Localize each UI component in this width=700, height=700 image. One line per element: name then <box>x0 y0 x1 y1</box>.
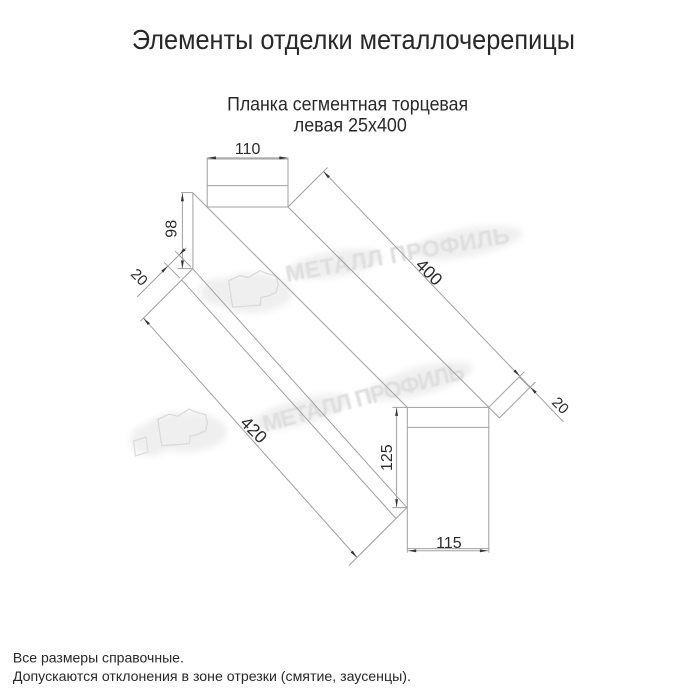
svg-text:МЕТАЛЛ ПРОФИЛЬ: МЕТАЛЛ ПРОФИЛЬ <box>260 358 468 437</box>
svg-text:125: 125 <box>379 444 396 471</box>
svg-text:Элементы отделки металлочерепи: Элементы отделки металлочерепицы <box>132 24 575 55</box>
svg-text:Планка сегментная торцевая: Планка сегментная торцевая <box>227 93 468 115</box>
svg-text:20: 20 <box>127 266 151 290</box>
svg-text:Допускаются отклонения в зоне: Допускаются отклонения в зоне отрезки (с… <box>13 669 411 684</box>
svg-text:115: 115 <box>436 535 462 552</box>
svg-text:20: 20 <box>548 394 572 418</box>
svg-text:левая 25х400: левая 25х400 <box>294 115 407 137</box>
svg-text:Все размеры справочные.: Все размеры справочные. <box>13 651 184 666</box>
svg-text:98: 98 <box>163 220 180 238</box>
svg-text:110: 110 <box>235 141 261 158</box>
